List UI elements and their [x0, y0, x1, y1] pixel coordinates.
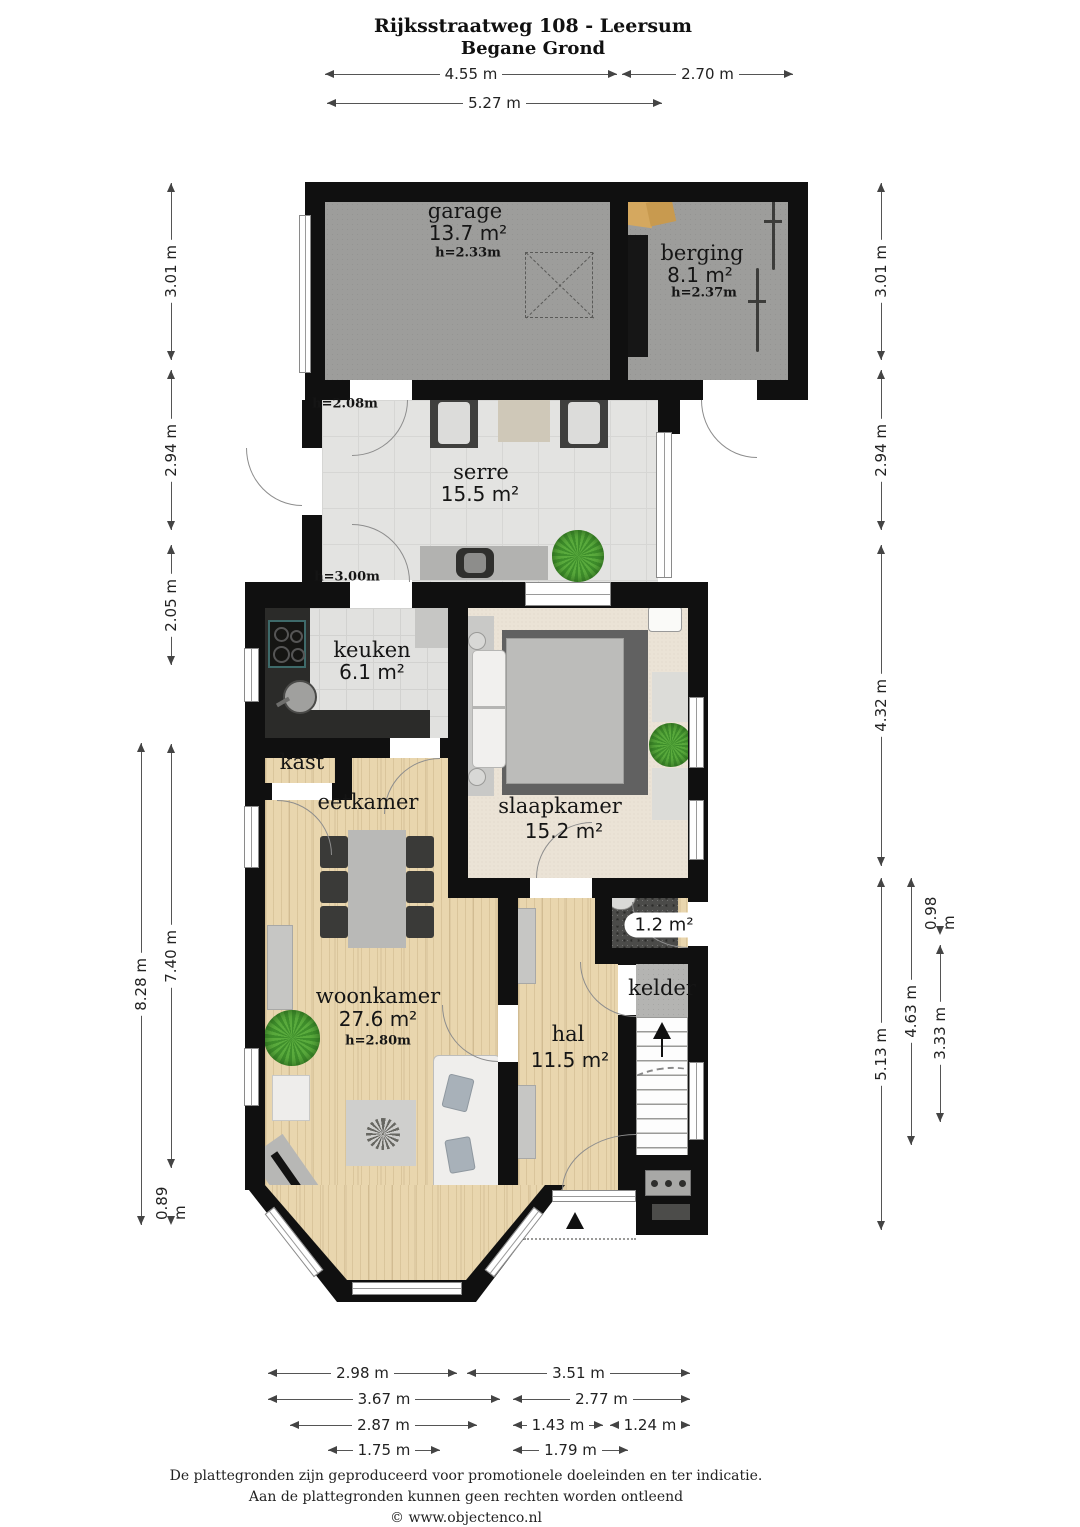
plant — [649, 723, 693, 767]
dim-bottom-7: 1.24 m — [610, 1417, 690, 1433]
dim-bottom-6: 1.43 m — [513, 1417, 603, 1433]
window — [656, 432, 672, 578]
dim-right-1: 3.01 m — [872, 183, 890, 360]
bicycle-handlebar — [748, 300, 766, 303]
room-label-kast: kast — [280, 750, 324, 774]
kitchen-counter — [265, 710, 430, 740]
door-gap — [530, 878, 592, 898]
note-h208: h=2.08m — [312, 397, 378, 412]
rug-flower-ornament — [366, 1118, 400, 1150]
room-area-hal: 11.5 m² — [531, 1048, 609, 1072]
sink-basin — [464, 553, 486, 573]
room-height-garage: h=2.33m — [435, 246, 501, 261]
side-table — [272, 1075, 310, 1121]
meter-dial — [679, 1180, 686, 1187]
sofa-pillow — [444, 1136, 476, 1174]
room-label-kelder: kelder — [628, 976, 696, 1000]
footer-line-2: Aan de plattegronden kunnen geen rechten… — [166, 1487, 766, 1508]
meter-dial — [651, 1180, 658, 1187]
footer-disclaimer: De plattegronden zijn geproduceerd voor … — [166, 1466, 766, 1527]
dining-table — [348, 830, 406, 948]
burner — [291, 648, 305, 662]
floorplan-page: Rijksstraatweg 108 - Leersum Begane Gron… — [0, 0, 1080, 1527]
bedroom-sink — [648, 606, 682, 632]
room-label-serre: serre — [453, 460, 509, 484]
porch-dotted-edge — [524, 1238, 636, 1240]
door-gap — [498, 1005, 518, 1062]
serre-chair-cushion — [568, 402, 600, 444]
room-label-eetkamer: eetkamer — [318, 790, 419, 814]
dim-left-5: 8.28 m — [132, 743, 150, 1225]
dining-chair — [406, 906, 434, 938]
bicycle — [772, 198, 775, 270]
room-area-garage: 13.7 m² — [429, 221, 507, 245]
room-area-berging: 8.1 m² — [667, 263, 733, 287]
plant — [552, 530, 604, 582]
dim-left-2: 2.94 m — [162, 370, 180, 530]
dim-right-6: 0.98 m — [931, 878, 949, 935]
stairs-up-arrow — [653, 1022, 671, 1039]
wall — [305, 182, 808, 202]
serre-chair-cushion — [438, 402, 470, 444]
room-label-woonkamer: woonkamer — [316, 984, 440, 1008]
burner — [274, 627, 289, 642]
door-arc — [701, 400, 757, 458]
wall — [610, 200, 628, 400]
window — [244, 1048, 259, 1106]
room-area-serre: 15.5 m² — [441, 482, 519, 506]
wall — [788, 182, 808, 400]
room-area-slaapkamer: 15.2 m² — [525, 819, 603, 843]
footer-line-3: © www.objectenco.nl — [166, 1508, 766, 1527]
room-label-hal: hal — [552, 1022, 585, 1046]
wall — [440, 738, 468, 758]
bedside-table — [468, 768, 486, 786]
meter-cupboard — [645, 1170, 691, 1196]
doormat — [652, 1204, 690, 1220]
room-label-garage: garage — [428, 199, 502, 223]
dim-left-1: 3.01 m — [162, 183, 180, 360]
window — [299, 215, 311, 373]
bedside-table — [468, 632, 486, 650]
title-floor: Begane Grond — [233, 38, 833, 60]
title-address: Rijksstraatweg 108 - Leersum — [233, 14, 833, 38]
door-arc — [246, 448, 302, 506]
room-height-berging: h=2.37m — [671, 286, 737, 301]
cooktop — [268, 620, 306, 668]
door-gap — [703, 380, 757, 400]
room-area-keuken: 6.1 m² — [339, 660, 405, 684]
dim-top-2: 2.70 m — [622, 66, 793, 82]
dim-right-4: 5.13 m — [872, 878, 890, 1230]
kitchen-cabinet — [415, 608, 448, 648]
dim-bottom-5: 2.87 m — [290, 1417, 477, 1433]
wall — [757, 380, 808, 400]
dining-chair — [406, 871, 434, 903]
dim-left-6: 0.89 m — [162, 1172, 180, 1225]
dim-bottom-2: 3.51 m — [467, 1365, 690, 1381]
dim-top-3: 5.27 m — [327, 95, 662, 111]
window — [689, 697, 704, 768]
dining-chair — [320, 871, 348, 903]
window — [525, 582, 611, 606]
door-gap — [390, 738, 440, 758]
room-label-keuken: keuken — [333, 638, 410, 662]
dim-bottom-4: 2.77 m — [513, 1391, 690, 1407]
window — [689, 800, 704, 860]
page-title: Rijksstraatweg 108 - Leersum Begane Gron… — [233, 14, 833, 60]
bay-window-pane — [352, 1282, 462, 1295]
dim-top-1: 4.55 m — [325, 66, 617, 82]
wall — [658, 400, 680, 434]
room-area-toilet: 1.2 m² — [624, 913, 703, 938]
serre-rug — [498, 396, 550, 442]
entrance-arrow — [566, 1212, 584, 1229]
radiator — [267, 925, 293, 1010]
bed — [506, 638, 624, 784]
dim-right-5: 4.63 m — [902, 878, 920, 1145]
dim-bottom-3: 3.67 m — [268, 1391, 500, 1407]
seat-cushion — [652, 672, 690, 722]
burner — [290, 630, 303, 643]
window — [244, 648, 259, 702]
wall — [412, 380, 610, 400]
dim-left-4: 7.40 m — [162, 744, 180, 1168]
room-height-woonkamer: h=2.80m — [345, 1034, 411, 1049]
bicycle-handlebar — [764, 220, 782, 223]
dim-left-3: 2.05 m — [162, 545, 180, 665]
note-h300: h=3.00m — [314, 570, 380, 585]
front-door — [552, 1190, 636, 1202]
footer-line-1: De plattegronden zijn geproduceerd voor … — [166, 1466, 766, 1487]
wall — [628, 380, 703, 400]
wall — [595, 888, 612, 952]
room-label-slaapkamer: slaapkamer — [498, 794, 622, 818]
door-gap — [302, 448, 322, 515]
dim-bottom-9: 1.79 m — [513, 1442, 628, 1458]
window — [689, 1062, 704, 1140]
seat-cushion — [652, 768, 690, 820]
bicycle — [756, 268, 759, 352]
bed-pillows — [472, 650, 506, 768]
room-label-berging: berging — [660, 241, 743, 265]
burner — [273, 646, 290, 663]
room-area-woonkamer: 27.6 m² — [339, 1007, 417, 1031]
dining-chair — [406, 836, 434, 868]
wall — [448, 878, 530, 898]
dim-right-2: 2.94 m — [872, 370, 890, 530]
dim-right-7: 3.33 m — [931, 945, 949, 1122]
dim-bottom-1: 2.98 m — [268, 1365, 457, 1381]
stairs-arrow-stem — [661, 1039, 663, 1057]
garage-reserved-area — [525, 252, 593, 318]
plant — [264, 1010, 320, 1066]
wall — [245, 582, 708, 608]
pillow-divider — [472, 706, 506, 709]
dim-right-3: 4.32 m — [872, 545, 890, 866]
dim-bottom-8: 1.75 m — [328, 1442, 440, 1458]
dining-chair — [320, 906, 348, 938]
window — [244, 806, 259, 868]
wall — [245, 783, 272, 800]
meter-dial — [665, 1180, 672, 1187]
